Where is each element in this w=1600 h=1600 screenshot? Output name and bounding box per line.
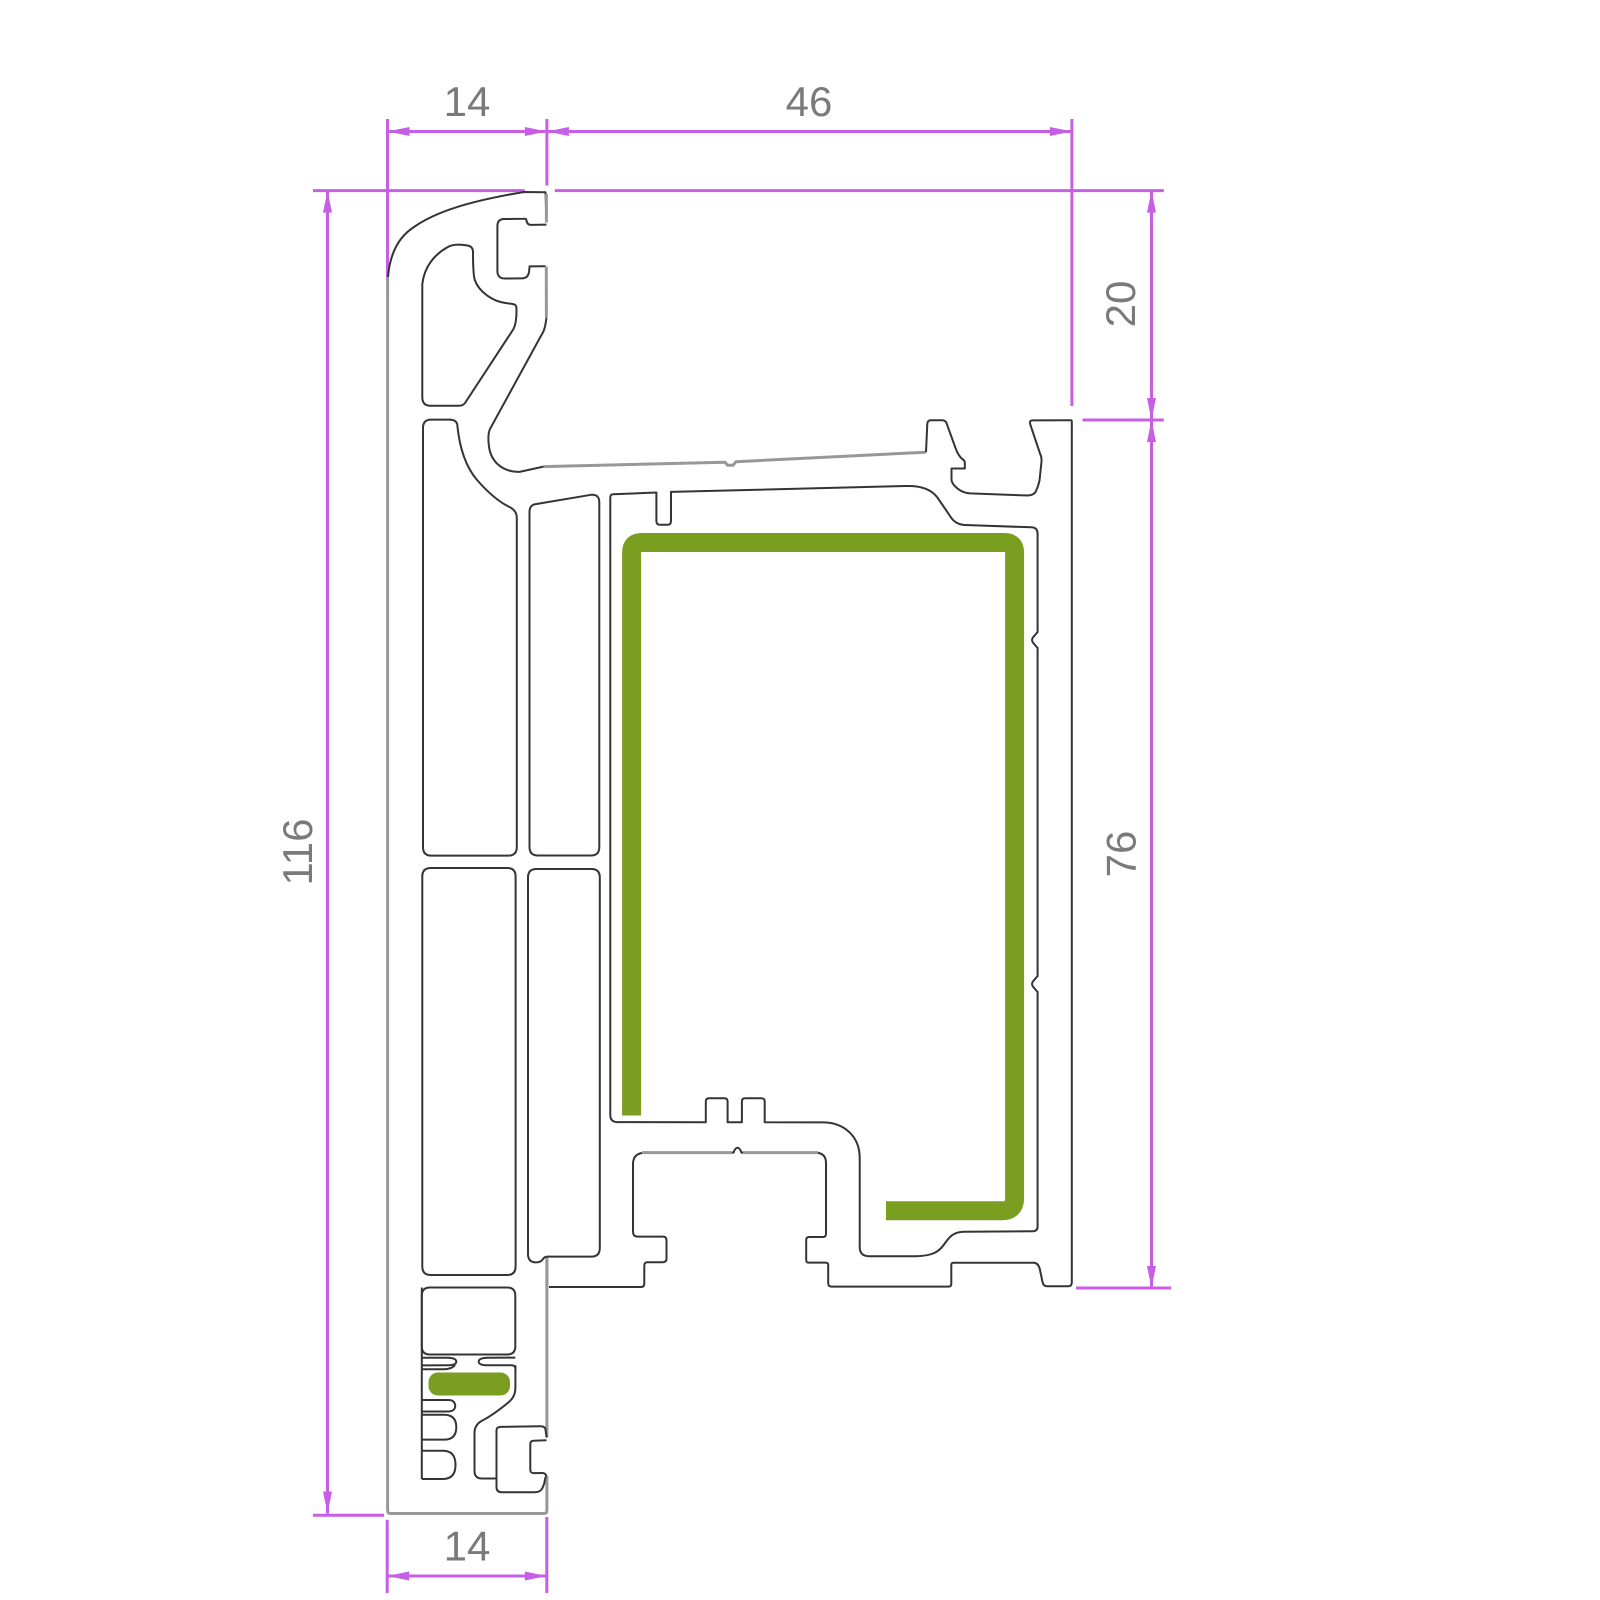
svg-text:116: 116 — [274, 819, 321, 886]
svg-text:14: 14 — [444, 1523, 491, 1570]
svg-text:14: 14 — [444, 78, 491, 125]
svg-text:46: 46 — [786, 78, 833, 125]
svg-text:76: 76 — [1098, 831, 1145, 878]
svg-text:20: 20 — [1097, 281, 1144, 328]
